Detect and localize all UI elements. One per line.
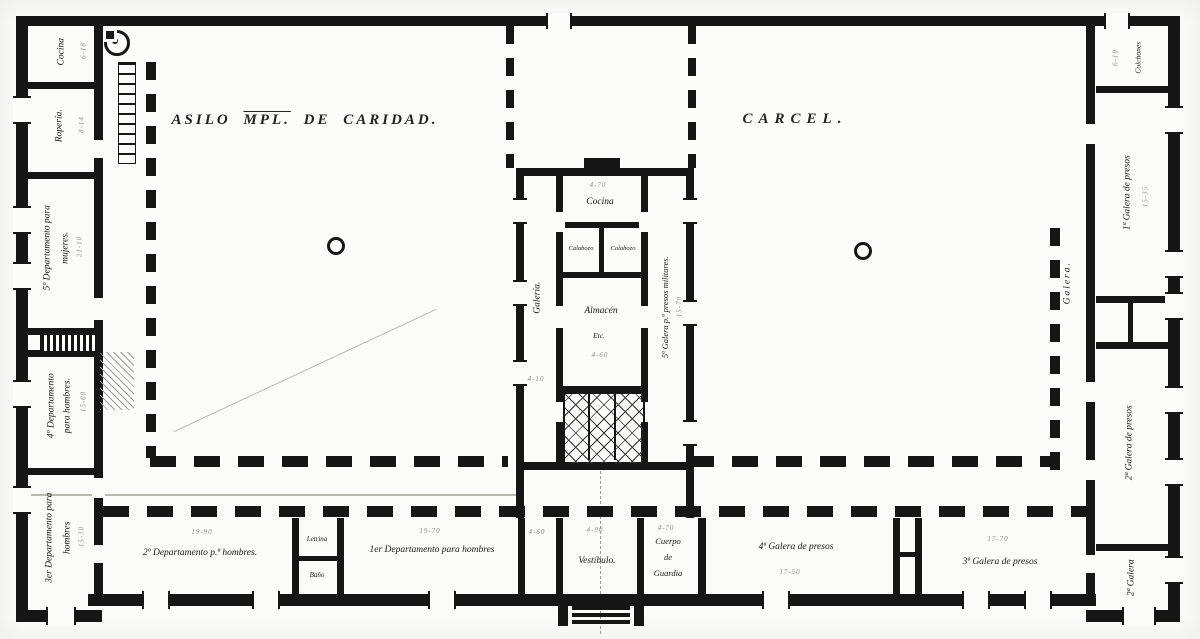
carcel-courtyard-colonnade-right	[1050, 228, 1060, 470]
room-label-galera1: 1ª Galera de presos	[1123, 108, 1133, 278]
arch-gap	[639, 212, 650, 232]
carcel-courtyard-title: CARCEL.	[695, 111, 895, 128]
room-label-roperia: Ropería.	[55, 76, 65, 176]
center-block-link-right	[686, 470, 694, 518]
center-block-top-stub	[584, 158, 620, 168]
door-gap	[92, 298, 105, 320]
entrance-post-right	[634, 594, 644, 626]
window	[13, 96, 31, 124]
window	[546, 13, 572, 29]
center-strip-colonnade-right	[688, 26, 696, 168]
dim-militares: 15-70	[677, 282, 684, 332]
room-label-cocina-center: Cocina	[560, 198, 640, 208]
dim-cocina-left: 6-18	[81, 31, 88, 71]
grand-stair-rail	[588, 394, 590, 460]
room-label-hombres4-1: 4º Departamento	[47, 341, 57, 471]
divider-galera1-cells	[1096, 296, 1170, 303]
floor-plan: ASILO MPL. DE CARIDAD. CARCEL.	[0, 0, 1200, 639]
window	[13, 206, 31, 234]
divider-hombres4-hombres3	[28, 468, 94, 475]
asilo-title-post: DE CARIDAD.	[291, 112, 439, 128]
door-gap	[1084, 124, 1097, 144]
window	[1024, 591, 1052, 609]
dim-cocina-center: 4-70	[568, 182, 628, 189]
window	[13, 262, 31, 290]
divider-cells-mid	[1128, 303, 1133, 342]
room-label-calabozo-izq: Calabozo	[561, 246, 601, 253]
room-label-militares: 5ª Galera p.ª presos militares.	[661, 207, 670, 407]
window	[683, 198, 697, 224]
door-gap	[1084, 382, 1097, 402]
room-label-hombres3-2: hombres	[63, 498, 73, 578]
window	[1165, 386, 1183, 414]
window	[13, 380, 31, 408]
dim-galera4: 17-50	[730, 569, 850, 576]
door-gap	[92, 140, 105, 158]
door-gap	[92, 478, 105, 498]
carcel-well	[854, 242, 872, 260]
window	[1165, 458, 1183, 486]
window	[1104, 13, 1130, 29]
room-label-mujeres-1: 5º Departamento para	[43, 173, 53, 323]
entrance-step	[572, 620, 630, 624]
room-label-galera2-corner: 2ª Galera	[1127, 543, 1137, 613]
entrance-step	[572, 606, 630, 610]
asilo-title-mpl: MPL.	[243, 112, 290, 128]
window	[962, 591, 990, 609]
corridor-label-galera: Galera.	[1063, 248, 1073, 318]
room-label-hombres4-2: para hombres.	[63, 351, 73, 461]
grand-stair-rail	[614, 394, 616, 460]
window	[1165, 556, 1183, 584]
dim-dept2: 19-90	[142, 529, 262, 536]
dim-dept1: 19-70	[370, 528, 490, 535]
divider-letrina-dept1	[337, 518, 344, 594]
dim-galera3: 17-70	[938, 536, 1058, 543]
room-label-cuerpo-3: Guardia	[628, 569, 708, 578]
bottom-wing-colonnade	[103, 506, 1086, 517]
arch-gap	[554, 212, 565, 232]
divider-cells-galera2	[1096, 342, 1170, 349]
dim-galera1: 15-35	[1143, 172, 1150, 222]
carcel-courtyard-colonnade-bottom	[688, 456, 1058, 467]
window	[683, 300, 697, 326]
asilo-courtyard-colonnade-bottom	[150, 456, 508, 467]
window	[762, 591, 790, 609]
room-label-hombres3-1: 3er Departamento para	[45, 463, 55, 613]
platform-hatch	[100, 352, 134, 410]
room-label-mujeres-2: mujeres.	[61, 198, 71, 298]
room-label-bano: Baño	[296, 572, 338, 579]
dim-almacen: 4-60	[570, 352, 630, 359]
room-label-letrina: Letrina	[296, 536, 338, 543]
dim-colchones: 6-10	[1113, 38, 1120, 78]
dim-cuerpo: 4-70	[636, 525, 696, 532]
room-label-dept1: 1er Departamento para hombres	[322, 546, 542, 556]
outer-wall-top	[16, 16, 1180, 26]
dim-hombres4: 15-60	[81, 377, 88, 427]
outer-wall-bottom-wing	[88, 594, 1096, 606]
divider-colchones-galera1	[1096, 86, 1170, 93]
grand-stair	[563, 392, 645, 466]
dim-hombres3: 15-30	[79, 512, 86, 562]
window	[513, 280, 527, 306]
window	[513, 198, 527, 224]
divider-calabozos-almacen	[563, 272, 641, 278]
window	[1165, 292, 1183, 320]
room-label-colchones: Colchones	[1134, 28, 1142, 88]
window	[1165, 250, 1183, 278]
label-almacen-etc: Etc.	[569, 332, 629, 340]
window	[683, 420, 697, 446]
dim-mujeres: 21-10	[77, 222, 84, 272]
window	[142, 591, 170, 609]
asilo-courtyard-colonnade-left	[146, 62, 156, 458]
dim-vestibulo: 4-90	[565, 527, 625, 534]
room-label-galera3: 3ª Galera de presos	[900, 558, 1100, 568]
scan-crease	[173, 309, 436, 432]
wall-pier	[103, 28, 117, 42]
door-gap	[1084, 460, 1097, 480]
center-strip-colonnade-left	[506, 26, 514, 168]
dim-roperia: 8-14	[79, 105, 86, 145]
room-label-cuerpo-2: de	[628, 553, 708, 562]
entrance-post-left	[558, 594, 568, 626]
window	[252, 591, 280, 609]
center-block-link-left	[516, 470, 524, 518]
window	[428, 591, 456, 609]
dim-pasillo: 4-60	[507, 529, 567, 536]
right-wing-inner-wall	[1086, 26, 1095, 594]
room-label-calabozo-der: Calabozo	[603, 246, 643, 253]
stair-ladder	[118, 62, 136, 164]
room-label-galera4: 4ª Galera de presos	[696, 543, 896, 553]
room-label-almacen: Almacén	[561, 307, 641, 317]
divider-cells-galera3	[915, 518, 922, 594]
window	[13, 486, 31, 514]
room-label-galera2: 2ª Galera de presos	[1125, 358, 1135, 528]
corridor-label-galeria: Galería.	[533, 258, 543, 338]
dim-galeria: 4-10	[516, 376, 556, 383]
room-label-dept2: 2º Departamento p.ª hombres.	[90, 549, 310, 559]
asilo-title-pre: ASILO	[172, 112, 244, 128]
divider-cells-mid-bottom	[893, 552, 915, 557]
asilo-well	[327, 237, 345, 255]
entrance-step	[572, 613, 630, 617]
center-block-wall-top	[516, 168, 694, 176]
asilo-courtyard-title: ASILO MPL. DE CARIDAD.	[145, 112, 465, 129]
window	[1165, 106, 1183, 134]
